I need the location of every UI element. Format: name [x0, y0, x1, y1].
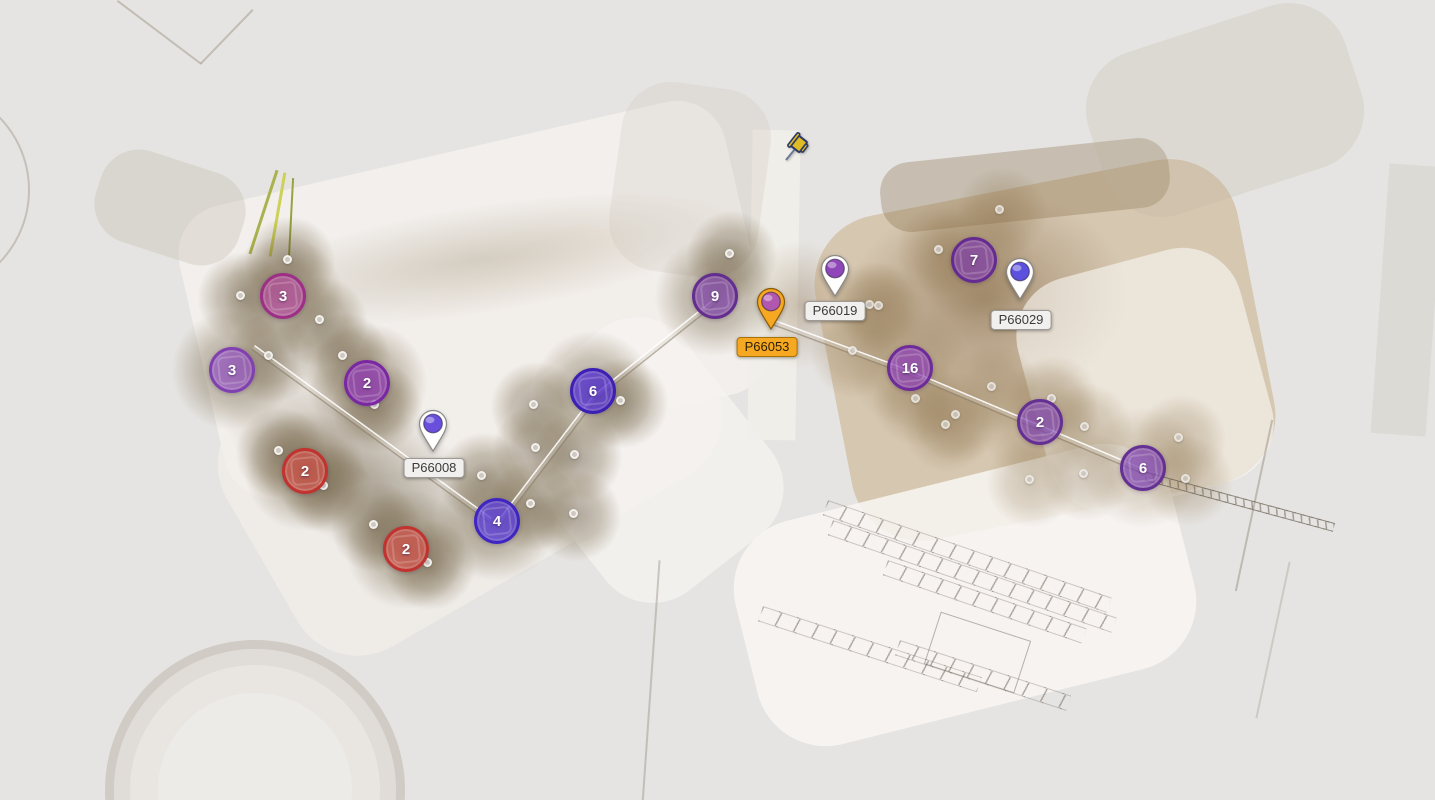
map-pin-icon	[820, 254, 850, 298]
pin-label-P66019[interactable]: P66019	[805, 301, 866, 321]
location-pin-P66029[interactable]	[1005, 257, 1035, 301]
location-pin-P66053[interactable]	[756, 287, 786, 331]
pushpin-icon[interactable]	[780, 131, 814, 165]
pin-label-P66053[interactable]: P66053	[737, 337, 798, 357]
map-pin-icon	[756, 287, 786, 331]
map-pin-icon	[1005, 257, 1035, 301]
map-viewport[interactable]: 3322246916726 P66008P66019P66029P66053	[0, 0, 1435, 800]
pin-label-P66029[interactable]: P66029	[991, 310, 1052, 330]
location-pin-P66008[interactable]	[418, 409, 448, 453]
location-pin-P66019[interactable]	[820, 254, 850, 298]
location-pins-layer: P66008P66019P66029P66053	[0, 0, 1435, 800]
pin-label-P66008[interactable]: P66008	[404, 458, 465, 478]
map-pin-icon	[418, 409, 448, 453]
